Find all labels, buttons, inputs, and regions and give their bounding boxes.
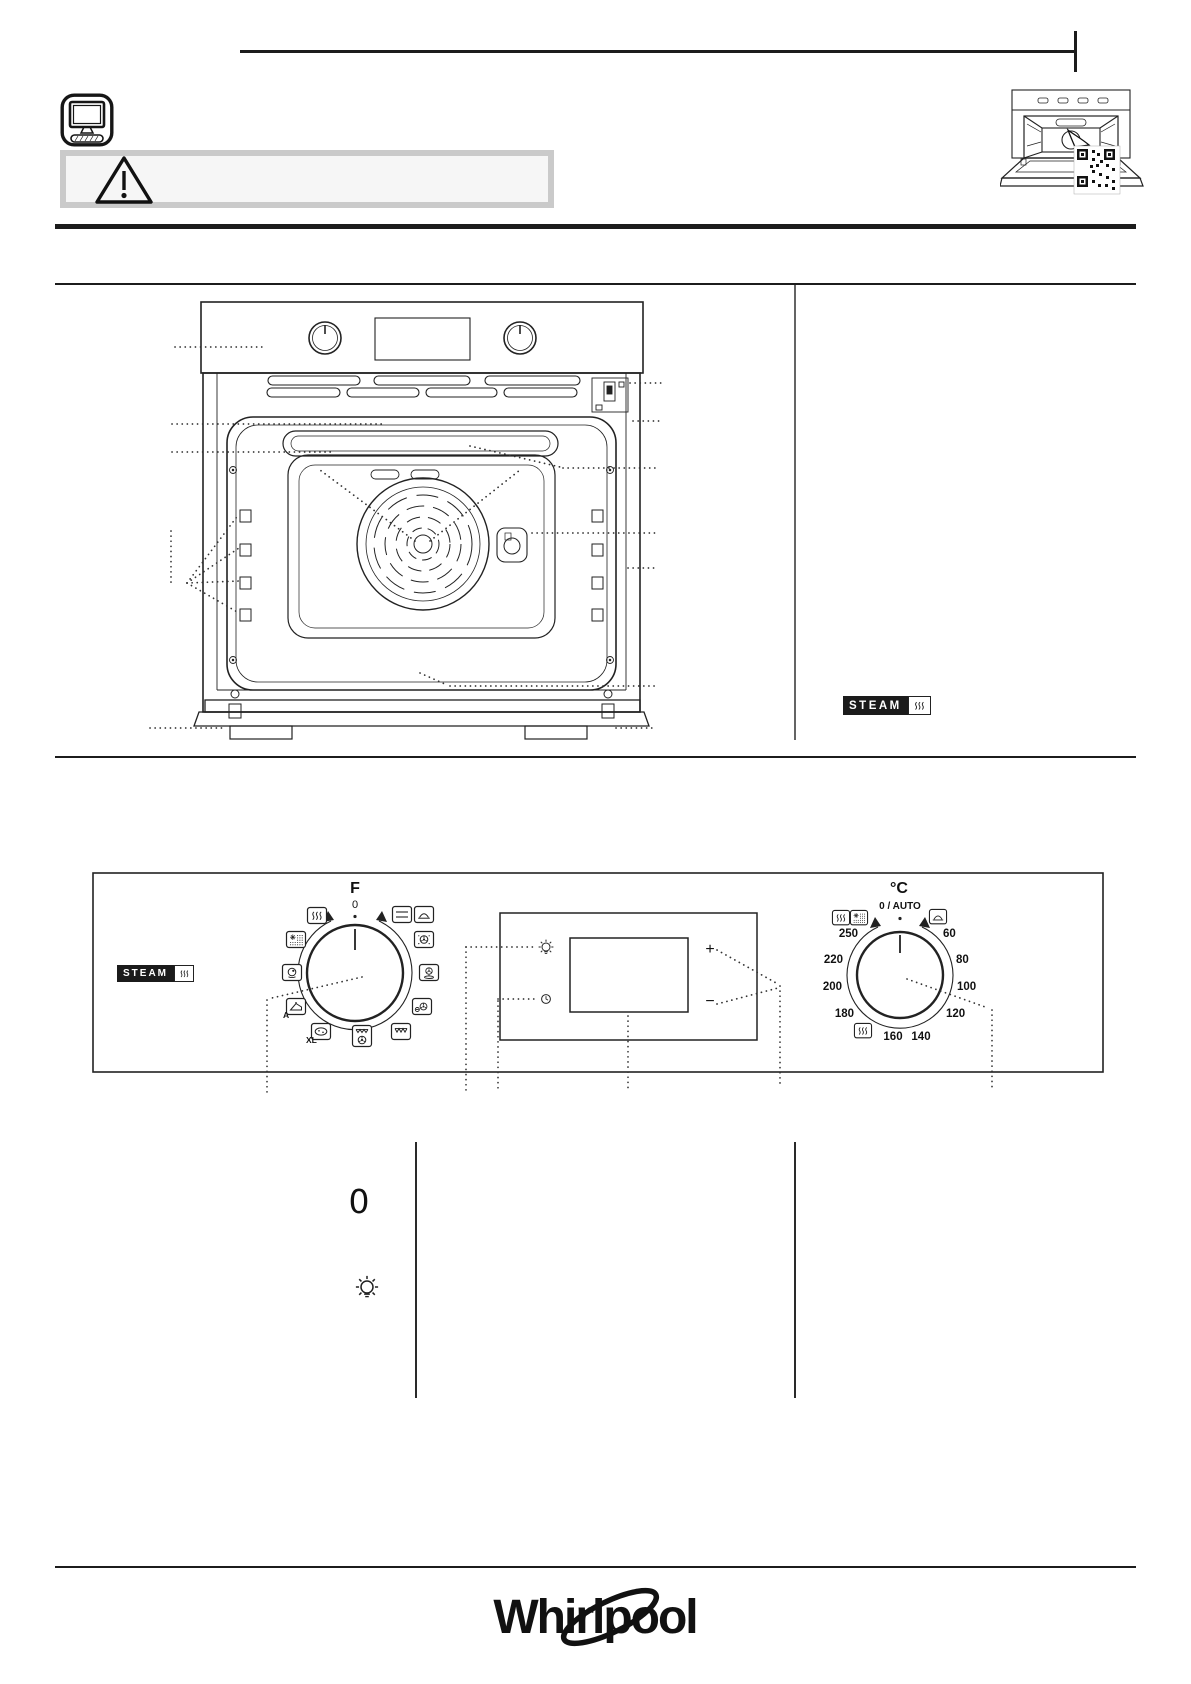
- temp-knob-zero-auto: 0 / AUTO: [879, 901, 921, 912]
- defrost-icon: [287, 932, 306, 948]
- steam-clean-icon: [854, 1023, 871, 1037]
- callout-lines: [267, 947, 992, 1092]
- oven-diagram: [0, 283, 1191, 761]
- steam-icon: [832, 910, 849, 924]
- warning-box: [60, 150, 554, 208]
- fan: [357, 478, 489, 610]
- steam-icon: [308, 908, 327, 924]
- forced-air-icon: [415, 932, 434, 948]
- minus-label: −: [705, 993, 714, 1010]
- temp-60: 60: [943, 928, 956, 940]
- top-rule-tick: [1074, 31, 1077, 72]
- turbo-grill-icon: [420, 965, 439, 981]
- temp-160: 160: [883, 1031, 902, 1043]
- light-bulb-icon: [343, 1267, 391, 1311]
- section-rule-thick: [55, 224, 1136, 229]
- brand-name: Whirlpool: [493, 1591, 696, 1644]
- door-sill: [194, 690, 649, 739]
- eco-steam-icon: [283, 965, 302, 981]
- legend-divider-right: [794, 1142, 796, 1398]
- grill-fan-icon: [353, 1026, 372, 1047]
- qr-pointer: [1068, 130, 1089, 147]
- temperature-knob: °C 0 / AUTO 250 220 200 180 160 140 120 …: [823, 880, 976, 1043]
- oven-light-icon: [539, 940, 554, 954]
- oven-front-view: [194, 302, 649, 739]
- legend-divider-left: [415, 1142, 417, 1398]
- thermostat-box: [592, 378, 628, 412]
- function-knob-label: F: [350, 880, 360, 897]
- control-panel-diagram: F 0 A XL: [0, 860, 1191, 1105]
- steam-icon: [174, 965, 194, 982]
- steam-badge-label: STEAM: [843, 696, 908, 715]
- oven-qr-thumbnail: [1000, 80, 1155, 232]
- steam-icon: [908, 696, 931, 715]
- conventional-icon: [393, 907, 412, 923]
- steam-badge-label: STEAM: [117, 965, 174, 982]
- temp-120: 120: [946, 1008, 965, 1020]
- temp-180: 180: [835, 1008, 854, 1020]
- xl-label: XL: [306, 1035, 317, 1045]
- plus-label: +: [705, 941, 714, 958]
- whirlpool-logo: Whirlpool: [450, 1576, 740, 1668]
- function-knob: F 0 A XL: [283, 880, 439, 1047]
- monitor-icon: [60, 93, 114, 147]
- temp-80: 80: [956, 954, 969, 966]
- steam-badge: STEAM: [843, 696, 931, 715]
- display-screen: [570, 938, 688, 1012]
- cake-icon: [287, 999, 306, 1015]
- legend-knob-zero: 0: [337, 1184, 381, 1220]
- timer-clock-icon: [542, 995, 551, 1004]
- warming-icon: [415, 907, 434, 923]
- temp-220: 220: [824, 954, 843, 966]
- oven-light: [497, 528, 527, 562]
- warning-triangle-icon: [94, 154, 154, 206]
- eco-forced-air-icon: [413, 999, 432, 1015]
- defrost-icon: [850, 910, 867, 924]
- temp-250: 250: [839, 928, 858, 940]
- shelf-supports: [240, 510, 603, 621]
- grill-icon: [392, 1024, 411, 1040]
- function-knob-zero: 0: [352, 899, 358, 911]
- top-rule: [240, 50, 1077, 53]
- manual-page: STEAM F 0: [0, 0, 1191, 1684]
- qr-code: [1074, 146, 1120, 194]
- temp-200: 200: [823, 981, 842, 993]
- warming-icon: [929, 909, 946, 923]
- footer-rule: [55, 1566, 1136, 1568]
- temp-100: 100: [957, 981, 976, 993]
- cake-auto-label: A: [283, 1010, 289, 1020]
- section-rule-thin-2: [55, 756, 1136, 758]
- control-panel-outline: [93, 873, 1103, 1072]
- temp-knob-label: °C: [890, 880, 908, 897]
- steam-badge: STEAM: [117, 965, 194, 982]
- temp-140: 140: [911, 1031, 930, 1043]
